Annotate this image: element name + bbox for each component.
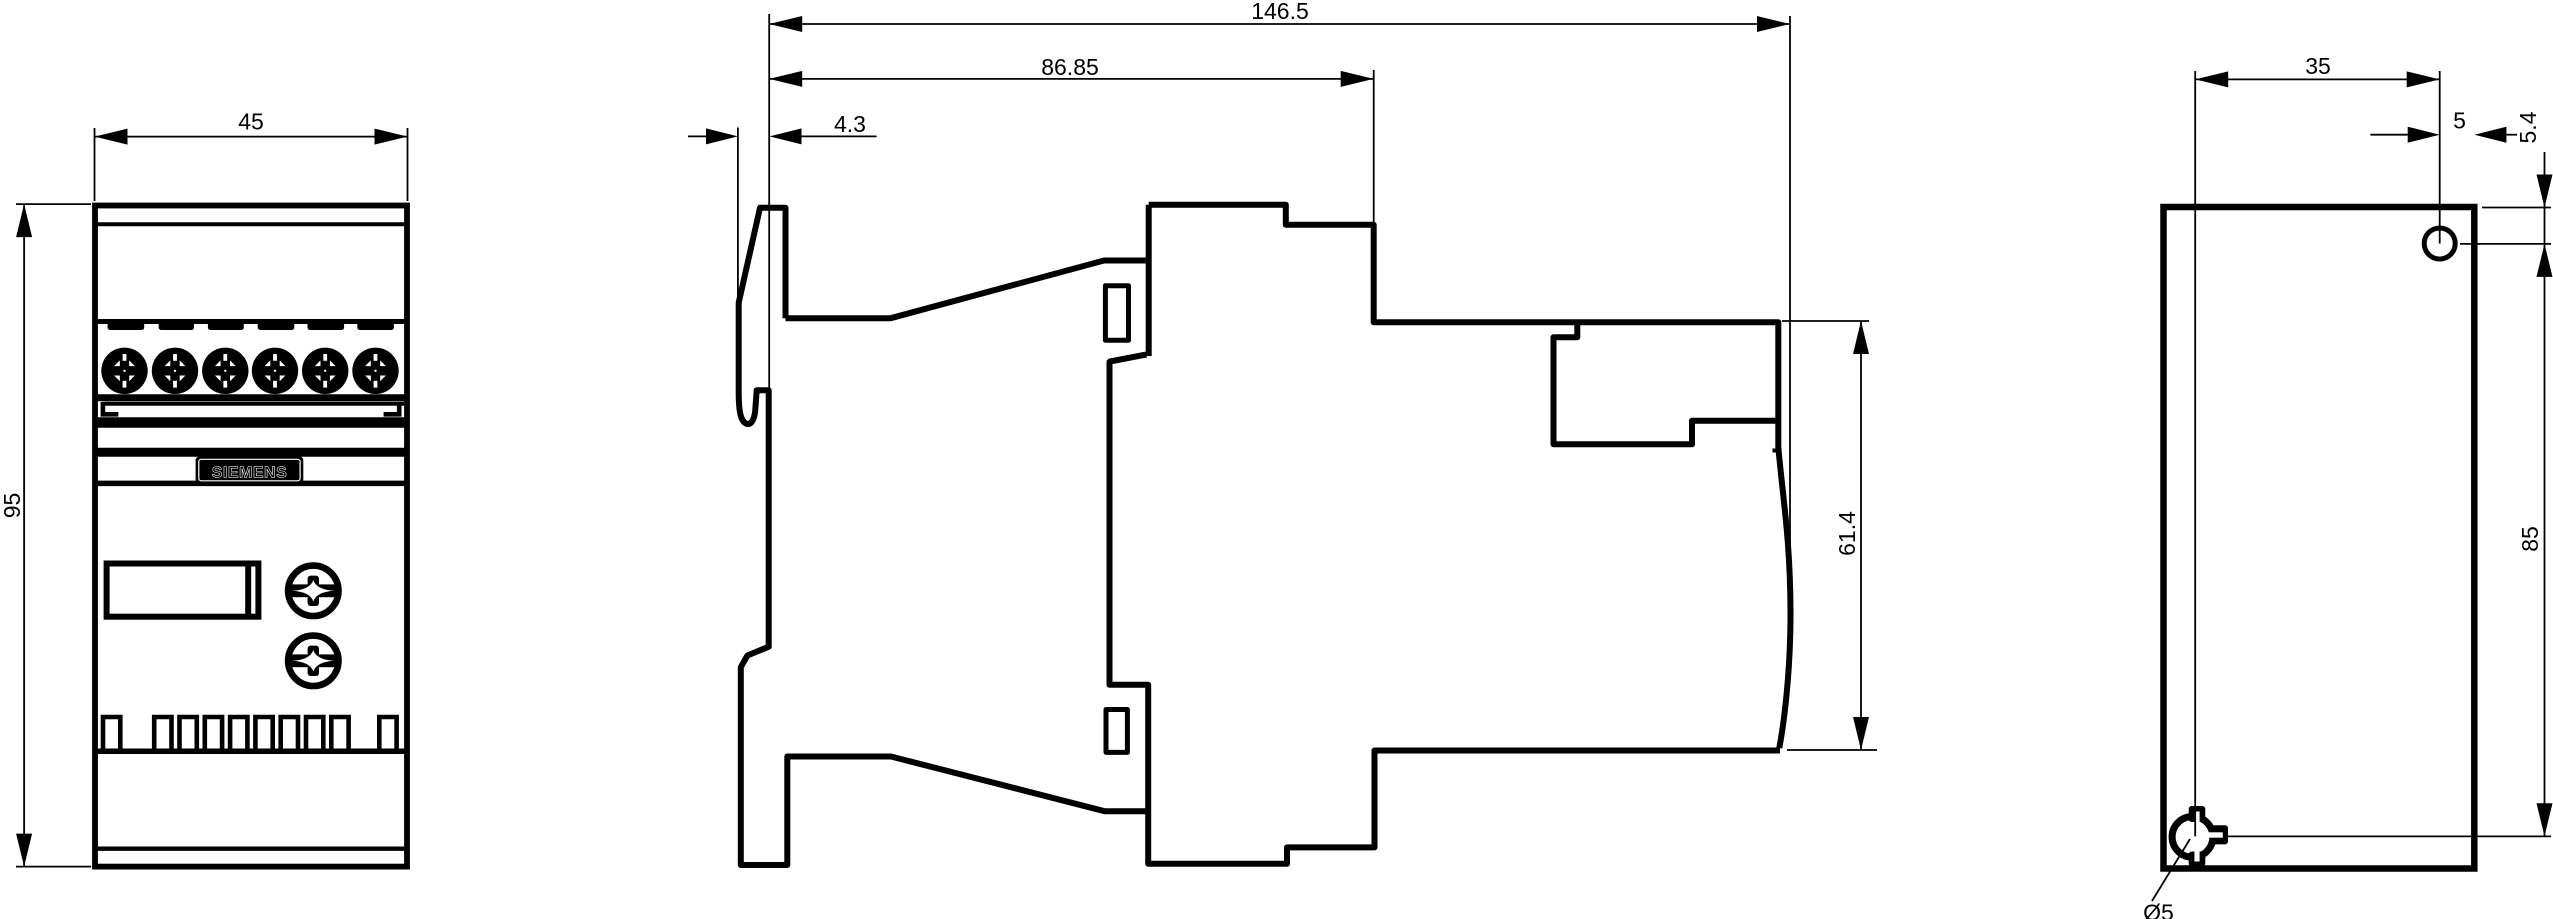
svg-text:61.4: 61.4 bbox=[1834, 511, 1860, 556]
svg-text:146.5: 146.5 bbox=[1251, 0, 1309, 24]
svg-text:4.3: 4.3 bbox=[834, 111, 866, 137]
svg-text:85: 85 bbox=[2517, 526, 2543, 552]
svg-text:5: 5 bbox=[2453, 108, 2466, 134]
svg-text:5.4: 5.4 bbox=[2515, 111, 2541, 143]
svg-text:Ø5: Ø5 bbox=[2143, 900, 2174, 919]
svg-text:35: 35 bbox=[2305, 53, 2331, 79]
svg-text:SIEMENS: SIEMENS bbox=[212, 465, 288, 482]
svg-text:86.85: 86.85 bbox=[1041, 54, 1099, 80]
svg-text:95: 95 bbox=[0, 493, 25, 519]
svg-text:45: 45 bbox=[238, 108, 264, 134]
